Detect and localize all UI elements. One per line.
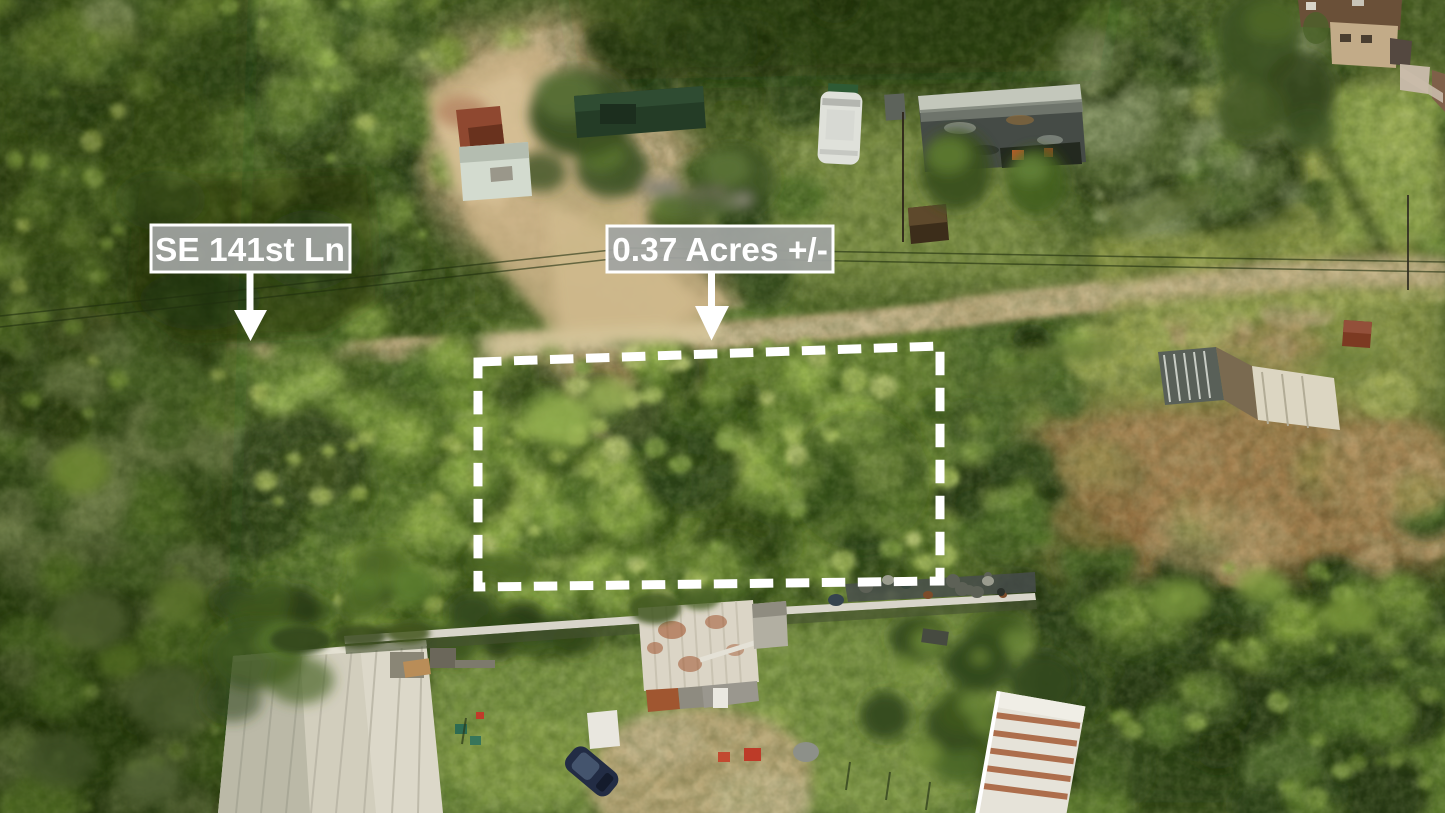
svg-text:0.37 Acres +/-: 0.37 Acres +/- [612,232,828,269]
svg-text:SE 141st Ln: SE 141st Ln [155,232,345,269]
